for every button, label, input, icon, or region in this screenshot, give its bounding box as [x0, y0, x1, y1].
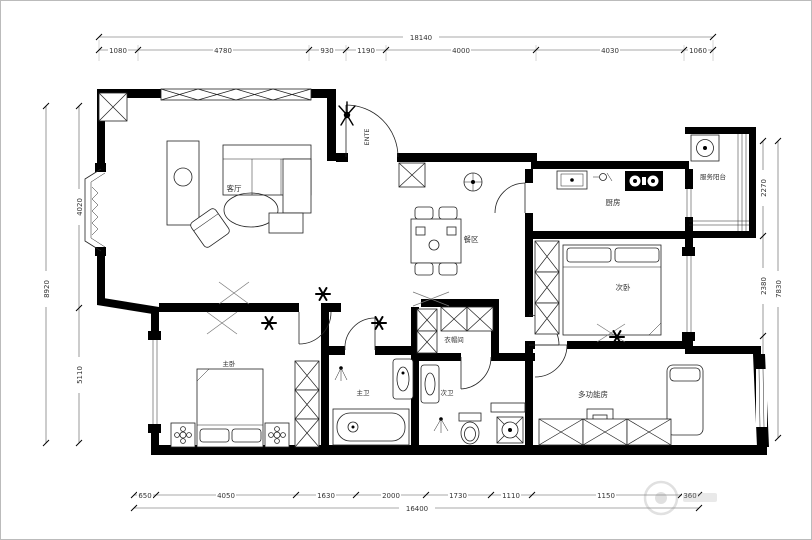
washing-machine: [691, 135, 719, 161]
dim-label: 4030: [601, 47, 619, 55]
bathtub: [333, 409, 409, 445]
master-wardrobe: [295, 361, 319, 447]
dim-label: 1730: [449, 492, 467, 500]
master-basin: [393, 359, 413, 399]
shower-head-second: [434, 417, 448, 433]
label-bedroom2: 次卧: [616, 282, 631, 292]
kitchen-door: [495, 183, 525, 213]
tv-console: [167, 141, 199, 225]
label-service-balcony: 服务阳台: [700, 172, 726, 181]
dim-label: 1060: [689, 47, 707, 55]
bay-window: [85, 163, 106, 256]
dim-label: 1150: [597, 492, 615, 500]
label-multi-function: 多功能房: [578, 389, 608, 399]
label-dining: 餐区: [464, 235, 479, 244]
sofa: [223, 145, 311, 213]
toilet: [459, 413, 481, 444]
bedroom2-wardrobe: [535, 241, 559, 334]
kitchen-sink: [557, 171, 587, 189]
ceiling-lamp: [464, 173, 482, 191]
label-second-bath: 次卫: [441, 388, 455, 397]
dim-label: 1190: [357, 47, 375, 55]
label-kitchen: 厨房: [606, 197, 621, 207]
dim-label: 2000: [382, 492, 400, 500]
dim-right-total: 7830: [775, 280, 783, 298]
dim-label: 650: [138, 492, 151, 500]
watermark: [645, 482, 717, 514]
dim-label: 2380: [760, 277, 768, 295]
master-bath-door: [345, 318, 375, 350]
dim-label: 5110: [76, 366, 84, 384]
master-window: [148, 331, 161, 433]
floorplan-canvas: 18140 1080 4780 930 1190 4000 4030 1060 …: [0, 0, 812, 540]
label-master-bath: 主卫: [357, 388, 371, 397]
dim-label: 2270: [760, 179, 768, 197]
dimension-left: 8920 4020 5110: [41, 103, 84, 446]
nightstand-right: [265, 423, 289, 447]
coffee-table: [269, 213, 303, 233]
dining-table: [411, 207, 461, 275]
floor-drain: [497, 417, 523, 443]
dim-label: 4050: [217, 492, 235, 500]
multi-wardrobe: [539, 419, 671, 445]
dimension-bottom: 650 4050 1630 2000 1730 1110 1150 360 16…: [131, 491, 702, 513]
corridor-cabinets: [417, 307, 493, 353]
dim-bottom-total: 16400: [406, 505, 428, 513]
bedroom2-bed: [563, 245, 661, 335]
entry-cabinet: [399, 163, 425, 187]
multi-chaise: [667, 365, 703, 435]
second-bath-door: [461, 357, 491, 389]
master-bed: [197, 369, 263, 447]
dim-left-total: 8920: [43, 280, 51, 298]
entry-door: [346, 105, 398, 157]
dim-label: 4780: [214, 47, 232, 55]
dim-label: 4020: [76, 198, 84, 216]
label-master-bedroom: 主卧: [223, 359, 237, 368]
second-basin: [421, 365, 439, 403]
gas-stove: [625, 171, 663, 191]
label-entry: ENTE: [363, 128, 371, 145]
dim-label: 4000: [452, 47, 470, 55]
label-cloakroom: 衣帽间: [444, 335, 464, 344]
dim-label: 1110: [502, 492, 520, 500]
multi-room-door: [535, 345, 567, 377]
dim-label: 930: [320, 47, 333, 55]
kitchen-faucet: [593, 173, 612, 181]
nightstand-left: [171, 423, 195, 447]
label-living: 客厅: [227, 183, 242, 193]
shower-head-master: [335, 366, 347, 381]
dimension-top: 18140 1080 4780 930 1190 4000 4030 1060: [96, 33, 716, 61]
floor-plan-svg: 18140 1080 4780 930 1190 4000 4030 1060 …: [1, 1, 812, 540]
dim-label: 1630: [317, 492, 335, 500]
dim-label: 1080: [109, 47, 127, 55]
bedroom2-window: [682, 247, 695, 341]
dim-top-total: 18140: [410, 34, 432, 42]
multi-window: [756, 369, 767, 427]
shower-bench: [491, 403, 525, 412]
